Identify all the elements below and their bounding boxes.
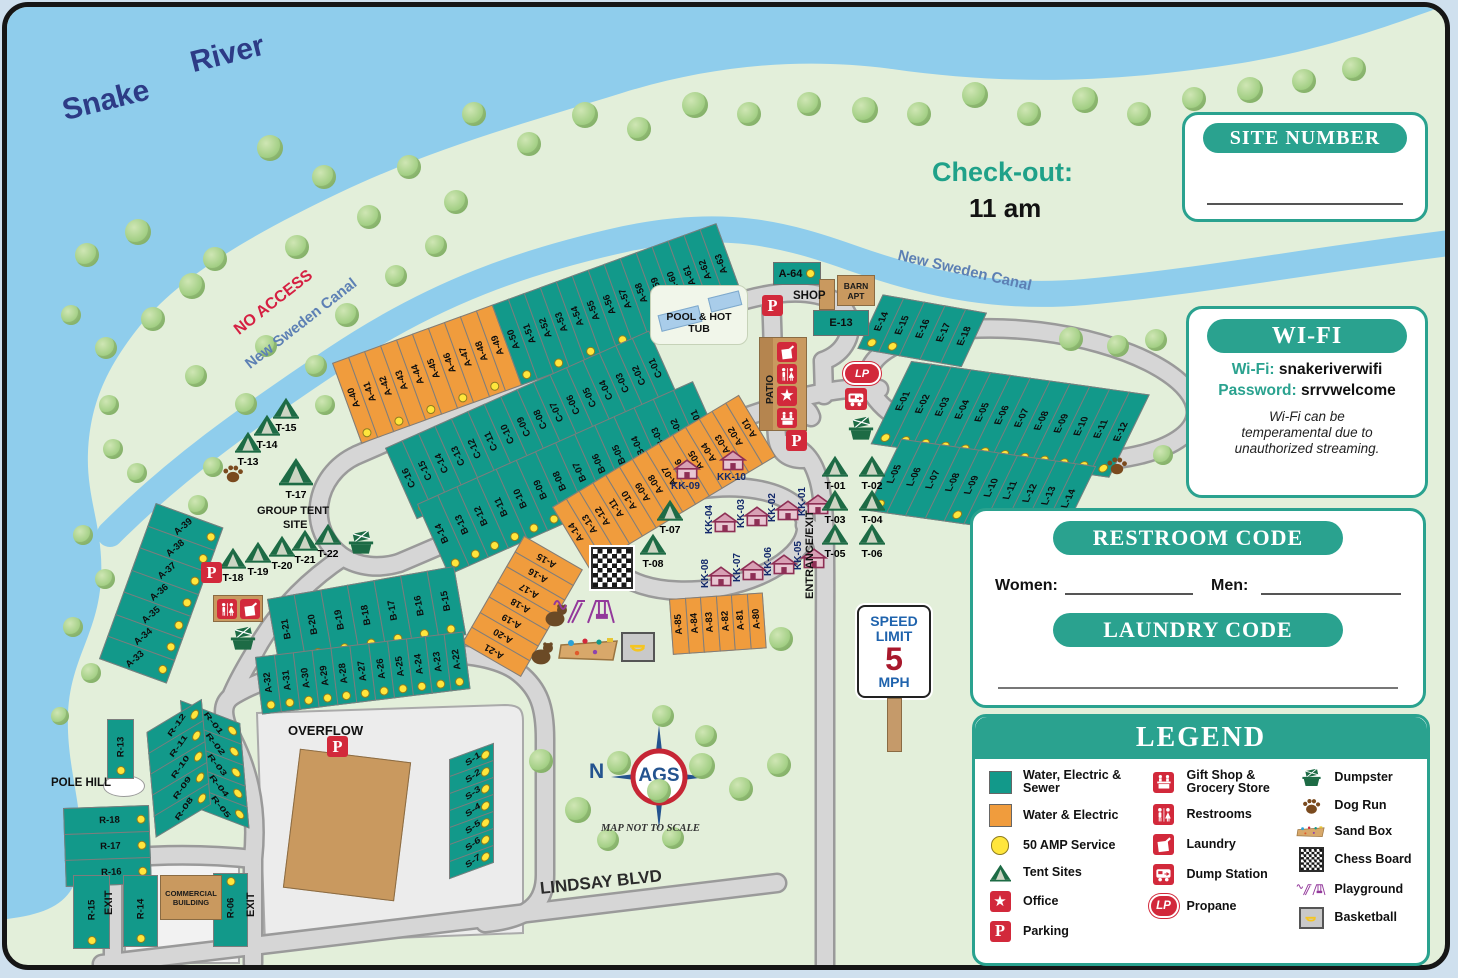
laundry-icon xyxy=(777,342,797,362)
tent-site-T-08: T-08 xyxy=(640,533,666,570)
50amp-dot-icon xyxy=(991,836,1010,855)
tree-icon xyxy=(257,135,283,161)
parking-icon: P xyxy=(762,295,783,316)
map-not-to-scale: MAP NOT TO SCALE xyxy=(601,823,700,834)
tent-label: T-22 xyxy=(315,548,341,560)
tree-icon xyxy=(769,627,793,651)
legend-column-2: Gift Shop & Grocery Store Restrooms Laun… xyxy=(1149,769,1297,942)
site-label: R-15 xyxy=(86,900,97,921)
propane-icon: LP xyxy=(843,362,881,385)
tent-label: T-14 xyxy=(254,439,280,451)
tent-icon xyxy=(990,864,1011,882)
restrooms-icon xyxy=(217,599,237,619)
tree-icon xyxy=(61,305,81,325)
legend-item-dump: Dump Station xyxy=(1149,864,1297,885)
50amp-dot xyxy=(398,684,408,694)
site-label: C-01 xyxy=(646,356,664,379)
basketball-marker xyxy=(621,632,655,662)
parking-marker: P xyxy=(327,736,348,757)
cabin-label: KK-07 xyxy=(732,553,743,582)
tree-icon xyxy=(285,235,309,259)
speed-line3: MPH xyxy=(861,675,927,690)
office-building: PATIO★ xyxy=(759,337,807,431)
site-label: B-15 xyxy=(439,590,453,612)
speed-limit-face: SPEED LIMIT 5 MPH xyxy=(857,605,931,698)
tent-label: T-18 xyxy=(220,572,246,584)
basketball-icon xyxy=(1299,907,1324,929)
tree-icon xyxy=(1127,102,1151,126)
50amp-dot xyxy=(205,531,217,543)
tent-icon xyxy=(245,541,271,563)
50amp-dot xyxy=(865,338,878,348)
dumpster-icon xyxy=(1301,769,1322,787)
legend-item-dumpster: Dumpster xyxy=(1296,769,1421,787)
tree-icon xyxy=(335,303,359,327)
speed-number: 5 xyxy=(861,643,927,675)
50amp-dot xyxy=(528,522,540,534)
tree-icon xyxy=(125,219,151,245)
site-label: A-26 xyxy=(375,658,388,680)
tree-icon xyxy=(188,495,208,515)
site-label: B-18 xyxy=(359,604,373,626)
site-number-title: SITE NUMBER xyxy=(1203,123,1407,153)
checkout-label: Check-out: xyxy=(932,157,1073,188)
50amp-dot xyxy=(481,766,490,778)
tent-site-T-15: T-15 xyxy=(273,397,299,434)
legend-item-label: Sand Box xyxy=(1334,825,1392,838)
site-label: A-29 xyxy=(318,665,331,687)
50amp-dot xyxy=(233,787,243,800)
legend-item-label: Dumpster xyxy=(1334,771,1392,784)
parking-marker: P xyxy=(786,430,807,451)
dog-paw-icon xyxy=(1301,796,1322,815)
restroom-code-title: RESTROOM CODE xyxy=(1053,521,1343,555)
legend-columns: Water, Electric & Sewer Water & Electric… xyxy=(985,769,1421,942)
parking-icon: P xyxy=(327,736,348,757)
50amp-dot xyxy=(360,688,370,698)
50amp-dot xyxy=(226,877,235,886)
wifi-box: WI-FI Wi-Fi: snakeriverwifi Password: sr… xyxy=(1186,306,1428,498)
office-icon: ★ xyxy=(777,386,797,406)
tent-label: T-17 xyxy=(279,489,313,501)
tent-icon xyxy=(220,547,246,569)
legend-item-label: Dump Station xyxy=(1187,868,1268,881)
50amp-dot xyxy=(181,597,193,609)
50amp-dot xyxy=(116,766,125,775)
restrooms-icon xyxy=(777,364,797,384)
paw-marker xyxy=(221,462,245,489)
site-label: A-24 xyxy=(412,653,425,675)
wifi-title: WI-FI xyxy=(1207,319,1407,353)
basketball-icon xyxy=(621,632,655,662)
50amp-dot xyxy=(87,936,96,945)
overflow-parking-building xyxy=(283,749,411,902)
50amp-dot xyxy=(266,700,276,710)
50amp-dot xyxy=(136,934,145,943)
tent-label: T-06 xyxy=(859,548,885,560)
site-label: A-82 xyxy=(719,611,731,632)
legend-item-label: Propane xyxy=(1187,900,1237,913)
site-label: B-12 xyxy=(472,504,490,527)
sandbox-marker xyxy=(557,633,621,668)
wifi-note-1: Wi-Fi can be xyxy=(1269,409,1345,424)
tent-site-T-18: T-18 xyxy=(220,547,246,584)
tree-icon xyxy=(141,307,165,331)
tent-site-T-02: T-02 xyxy=(859,455,885,492)
tree-icon xyxy=(103,439,123,459)
playground-icon xyxy=(552,593,616,629)
playground-marker xyxy=(552,593,616,634)
chess-marker xyxy=(591,547,633,589)
tent-site-T-01: T-01 xyxy=(822,455,848,492)
tent-icon xyxy=(859,523,885,545)
tree-icon xyxy=(695,725,717,747)
cabin-label: KK-10 xyxy=(717,472,746,483)
legend-item-label: Basketball xyxy=(1334,911,1397,924)
50amp-dot xyxy=(197,791,206,805)
50amp-dot xyxy=(489,539,501,551)
50amp-dot xyxy=(227,724,237,737)
legend-item-label: Laundry xyxy=(1187,838,1236,851)
tree-icon xyxy=(462,102,486,126)
tree-icon xyxy=(627,117,651,141)
cabin-KK-09: KK-09 xyxy=(673,459,701,486)
chess-board-icon xyxy=(591,547,633,589)
legend-item-label: Office xyxy=(1023,895,1058,908)
tree-icon xyxy=(81,663,101,683)
50amp-dot xyxy=(469,548,481,560)
legend-item-label: Parking xyxy=(1023,925,1069,938)
tree-icon xyxy=(1237,77,1263,103)
50amp-dot xyxy=(304,695,314,705)
site-R-14: R-14 xyxy=(123,875,158,947)
group-tent-line1: GROUP TENT xyxy=(257,505,329,517)
site-label: B-20 xyxy=(306,613,320,635)
site-label: R-13 xyxy=(115,737,126,758)
site-label: A-22 xyxy=(450,649,463,671)
paw-marker xyxy=(1105,454,1129,481)
50amp-dot xyxy=(138,866,147,875)
site-label: A-63 xyxy=(713,253,730,276)
men-code-blank xyxy=(1261,593,1401,595)
compass-n: N xyxy=(589,760,604,784)
lp-marker: LP xyxy=(843,362,881,385)
parking-icon: P xyxy=(201,562,222,583)
tree-icon xyxy=(127,463,147,483)
tree-icon xyxy=(647,779,671,803)
dumpster-icon xyxy=(347,531,375,555)
women-code-blank xyxy=(1065,593,1193,595)
site-label: R-18 xyxy=(99,814,120,826)
legend-item-tent: Tent Sites xyxy=(985,864,1149,882)
cabin-label: KK-08 xyxy=(700,559,711,588)
cabin-label: KK-04 xyxy=(704,505,715,534)
dump-marker xyxy=(845,388,867,410)
speed-limit-sign: SPEED LIMIT 5 MPH xyxy=(857,605,931,752)
50amp-dot xyxy=(137,840,146,849)
tree-icon xyxy=(1342,57,1366,81)
wifi-network-value: snakeriverwifi xyxy=(1279,361,1382,378)
50amp-dot xyxy=(878,433,891,443)
legend-item-paw: Dog Run xyxy=(1296,796,1421,815)
legend-item-basketball: Basketball xyxy=(1296,907,1421,929)
restrooms-icon xyxy=(1153,804,1174,825)
tent-site-T-04: T-04 xyxy=(859,489,885,526)
speed-line1: SPEED xyxy=(870,613,917,629)
site-label: A-23 xyxy=(431,651,444,673)
site-label: A-31 xyxy=(280,670,293,692)
site-label: A-27 xyxy=(356,660,369,682)
dog-paw-icon xyxy=(1105,454,1129,476)
legend-item-square-teal: Water, Electric & Sewer xyxy=(985,769,1149,795)
gift-shop-icon xyxy=(1153,772,1174,793)
legend-box: LEGEND Water, Electric & Sewer Water & E… xyxy=(972,714,1430,966)
tree-icon xyxy=(179,273,205,299)
site-label: A-33 xyxy=(124,648,147,670)
tent-label: T-05 xyxy=(822,548,848,560)
50amp-dot xyxy=(886,341,899,351)
parking-marker: P xyxy=(762,295,783,316)
cabin-KK-08: KK-08 xyxy=(707,566,735,593)
site-label: E-12 xyxy=(1110,422,1130,443)
site-label: B-06 xyxy=(590,451,608,474)
50amp-dot xyxy=(481,834,490,846)
site-number-blank xyxy=(1207,203,1403,205)
site-label: B-14 xyxy=(433,521,451,544)
legend-item-lp: LP Propane xyxy=(1149,894,1297,918)
legend-item-label: Dog Run xyxy=(1334,799,1386,812)
tent-icon xyxy=(279,457,313,486)
50amp-dot xyxy=(235,808,245,821)
site-label: A-36 xyxy=(148,582,171,604)
50amp-dot xyxy=(189,575,201,587)
tent-label: T-08 xyxy=(640,558,666,570)
50amp-dot xyxy=(553,357,565,369)
legend-item-label: Playground xyxy=(1334,883,1403,896)
tent-site-T-07: T-07 xyxy=(657,499,683,536)
tent-site-T-19: T-19 xyxy=(245,541,271,578)
parking-marker: P xyxy=(201,562,222,583)
50amp-dot xyxy=(323,693,333,703)
tree-icon xyxy=(797,92,821,116)
wifi-password-label: Password: xyxy=(1218,382,1296,399)
dump-station-icon xyxy=(1153,864,1174,885)
barn-apt: BARN APT xyxy=(837,275,875,306)
tent-icon xyxy=(859,489,885,511)
50amp-dot xyxy=(136,814,145,823)
tree-icon xyxy=(852,97,878,123)
tree-icon xyxy=(1017,102,1041,126)
50amp-dot xyxy=(806,269,815,278)
overflow-label: OVERFLOW xyxy=(288,723,363,738)
legend-item-laundry: Laundry xyxy=(1149,834,1297,855)
50amp-dot xyxy=(361,427,373,439)
tree-icon xyxy=(305,355,327,377)
tree-icon xyxy=(529,749,553,773)
50amp-dot xyxy=(509,531,521,543)
tent-site-T-22: T-22 xyxy=(315,523,341,560)
hot-tub-shape xyxy=(708,290,743,312)
legend-column-3: Dumpster Dog Run Sand Box Chess Board Pl… xyxy=(1296,769,1421,942)
tree-icon xyxy=(767,753,791,777)
propane-icon: LP xyxy=(1149,894,1179,918)
laundry-icon xyxy=(240,599,260,619)
cabin-label: KK-05 xyxy=(793,541,804,570)
tent-icon xyxy=(822,523,848,545)
parking-icon: P xyxy=(990,921,1011,942)
tree-icon xyxy=(203,457,223,477)
tree-icon xyxy=(425,235,447,257)
50amp-dot xyxy=(379,686,389,696)
tree-icon xyxy=(312,165,336,189)
50amp-dot xyxy=(417,681,427,691)
tree-icon xyxy=(1145,329,1167,351)
tree-icon xyxy=(572,102,598,128)
tent-site-T-17: T-17 xyxy=(279,457,313,501)
tree-icon xyxy=(607,751,631,775)
legend-item-office: ★ Office xyxy=(985,891,1149,912)
tent-site-T-05: T-05 xyxy=(822,523,848,560)
legend-item-label: Chess Board xyxy=(1334,853,1411,866)
dog-paw-icon xyxy=(221,462,245,484)
group-tent-line2: SITE xyxy=(283,519,307,531)
site-label: B-19 xyxy=(332,609,346,631)
shop-label: SHOP xyxy=(793,290,826,302)
50amp-dot xyxy=(481,749,490,761)
dumpster-icon xyxy=(229,627,257,651)
sandbox-icon xyxy=(1296,824,1326,838)
site-label: A-34 xyxy=(132,626,155,648)
tree-icon xyxy=(385,265,407,287)
playground-icon xyxy=(1296,881,1326,898)
site-number-box: SITE NUMBER xyxy=(1182,112,1428,222)
building-label: COMMERCIAL BUILDING xyxy=(161,888,221,908)
tree-icon xyxy=(1072,87,1098,113)
men-label: Men: xyxy=(1211,577,1248,595)
tree-icon xyxy=(517,132,541,156)
cabin-label: KK-02 xyxy=(767,493,778,522)
tree-icon xyxy=(235,393,257,415)
tree-icon xyxy=(75,243,99,267)
site-label: B-08 xyxy=(551,469,569,492)
tree-icon xyxy=(689,753,715,779)
cabin-icon xyxy=(719,450,747,472)
site-label: A-39 xyxy=(172,516,195,538)
50amp-dot xyxy=(157,663,169,675)
tent-icon xyxy=(640,533,666,555)
50amp-dot xyxy=(194,750,203,764)
site-label: B-13 xyxy=(453,513,471,536)
50amp-dot xyxy=(195,770,204,784)
tree-icon xyxy=(682,92,708,118)
50amp-dot xyxy=(436,679,446,689)
legend-item-label: Tent Sites xyxy=(1023,866,1082,879)
laundry-code-title: LAUNDRY CODE xyxy=(1053,613,1343,647)
pole-hill-label: POLE HILL xyxy=(51,777,111,789)
site-label: B-11 xyxy=(492,495,510,518)
tree-icon xyxy=(1292,69,1316,93)
dumpster-marker xyxy=(847,417,875,446)
legend-item-parking: P Parking xyxy=(985,921,1149,942)
building-label: BARN APT xyxy=(838,280,874,302)
site-label: E-18 xyxy=(954,326,974,347)
cabin-icon xyxy=(673,459,701,481)
legend-item-gift: Gift Shop & Grocery Store xyxy=(1149,769,1297,795)
tent-icon xyxy=(822,489,848,511)
cabin-KK-04: KK-04 xyxy=(711,512,739,539)
site-label: A-37 xyxy=(156,560,179,582)
tree-icon xyxy=(565,797,591,823)
legend-item-label: 50 AMP Service xyxy=(1023,839,1115,852)
site-label: A-81 xyxy=(735,610,747,631)
commercial-building: COMMERCIAL BUILDING xyxy=(160,875,222,920)
dumpster-icon xyxy=(847,417,875,441)
site-label: A-85 xyxy=(673,614,685,635)
tent-icon xyxy=(315,523,341,545)
tree-icon xyxy=(95,569,115,589)
campground-map-page: SPEED LIMIT 5 MPH AGS ★ A-40A-41A-42A-43… xyxy=(0,0,1458,978)
tent-site-T-06: T-06 xyxy=(859,523,885,560)
tree-icon xyxy=(907,102,931,126)
50amp-dot xyxy=(173,619,185,631)
parking-icon: P xyxy=(786,430,807,451)
site-label: A-38 xyxy=(164,538,187,560)
tree-icon xyxy=(1182,87,1206,111)
50amp-dot xyxy=(425,404,437,416)
50amp-dot xyxy=(481,783,490,795)
tent-site-T-03: T-03 xyxy=(822,489,848,526)
pool-label: POOL & HOT TUB xyxy=(655,312,743,335)
pool-area: POOL & HOT TUB xyxy=(650,285,748,345)
site-label: B-07 xyxy=(570,460,588,483)
tree-icon xyxy=(63,617,83,637)
cabin-icon xyxy=(711,512,739,534)
site-label: R-14 xyxy=(135,899,146,920)
wifi-password-value: srrvwelcome xyxy=(1301,382,1396,399)
sign-post xyxy=(887,698,902,752)
tree-icon xyxy=(737,102,761,126)
tree-icon xyxy=(99,395,119,415)
exit-west: EXIT xyxy=(103,891,115,915)
codes-box: RESTROOM CODE Women: Men: LAUNDRY CODE xyxy=(970,508,1426,708)
entrance-exit: ENTRANCE/EXIT xyxy=(804,510,816,599)
site-label: R-06 xyxy=(225,898,236,919)
50amp-dot xyxy=(165,641,177,653)
legend-title: LEGEND xyxy=(975,717,1427,759)
legend-item-dot-yellow: 50 AMP Service xyxy=(985,836,1149,855)
50amp-dot xyxy=(481,800,490,812)
water-electric-swatch xyxy=(989,804,1012,827)
tree-icon xyxy=(95,337,117,359)
bear-marker xyxy=(529,641,555,670)
tent-label: T-19 xyxy=(245,566,271,578)
wifi-network-label: Wi-Fi: xyxy=(1232,361,1275,378)
wifi-note-3: unauthorized streaming. xyxy=(1235,441,1380,456)
gift-shop-icon xyxy=(777,408,797,428)
site-label: A-84 xyxy=(688,613,700,634)
tree-icon xyxy=(397,155,421,179)
50amp-dot xyxy=(489,380,501,392)
patio-label: PATIO xyxy=(765,375,776,404)
site-label: A-30 xyxy=(299,667,312,689)
legend-item-label: Restrooms xyxy=(1187,808,1252,821)
site-label: A-35 xyxy=(140,604,163,626)
50amp-dot xyxy=(192,729,201,743)
tree-icon xyxy=(357,205,381,229)
restroom-building xyxy=(213,595,263,622)
50amp-dot xyxy=(393,415,405,427)
site-label: B-17 xyxy=(386,599,400,621)
